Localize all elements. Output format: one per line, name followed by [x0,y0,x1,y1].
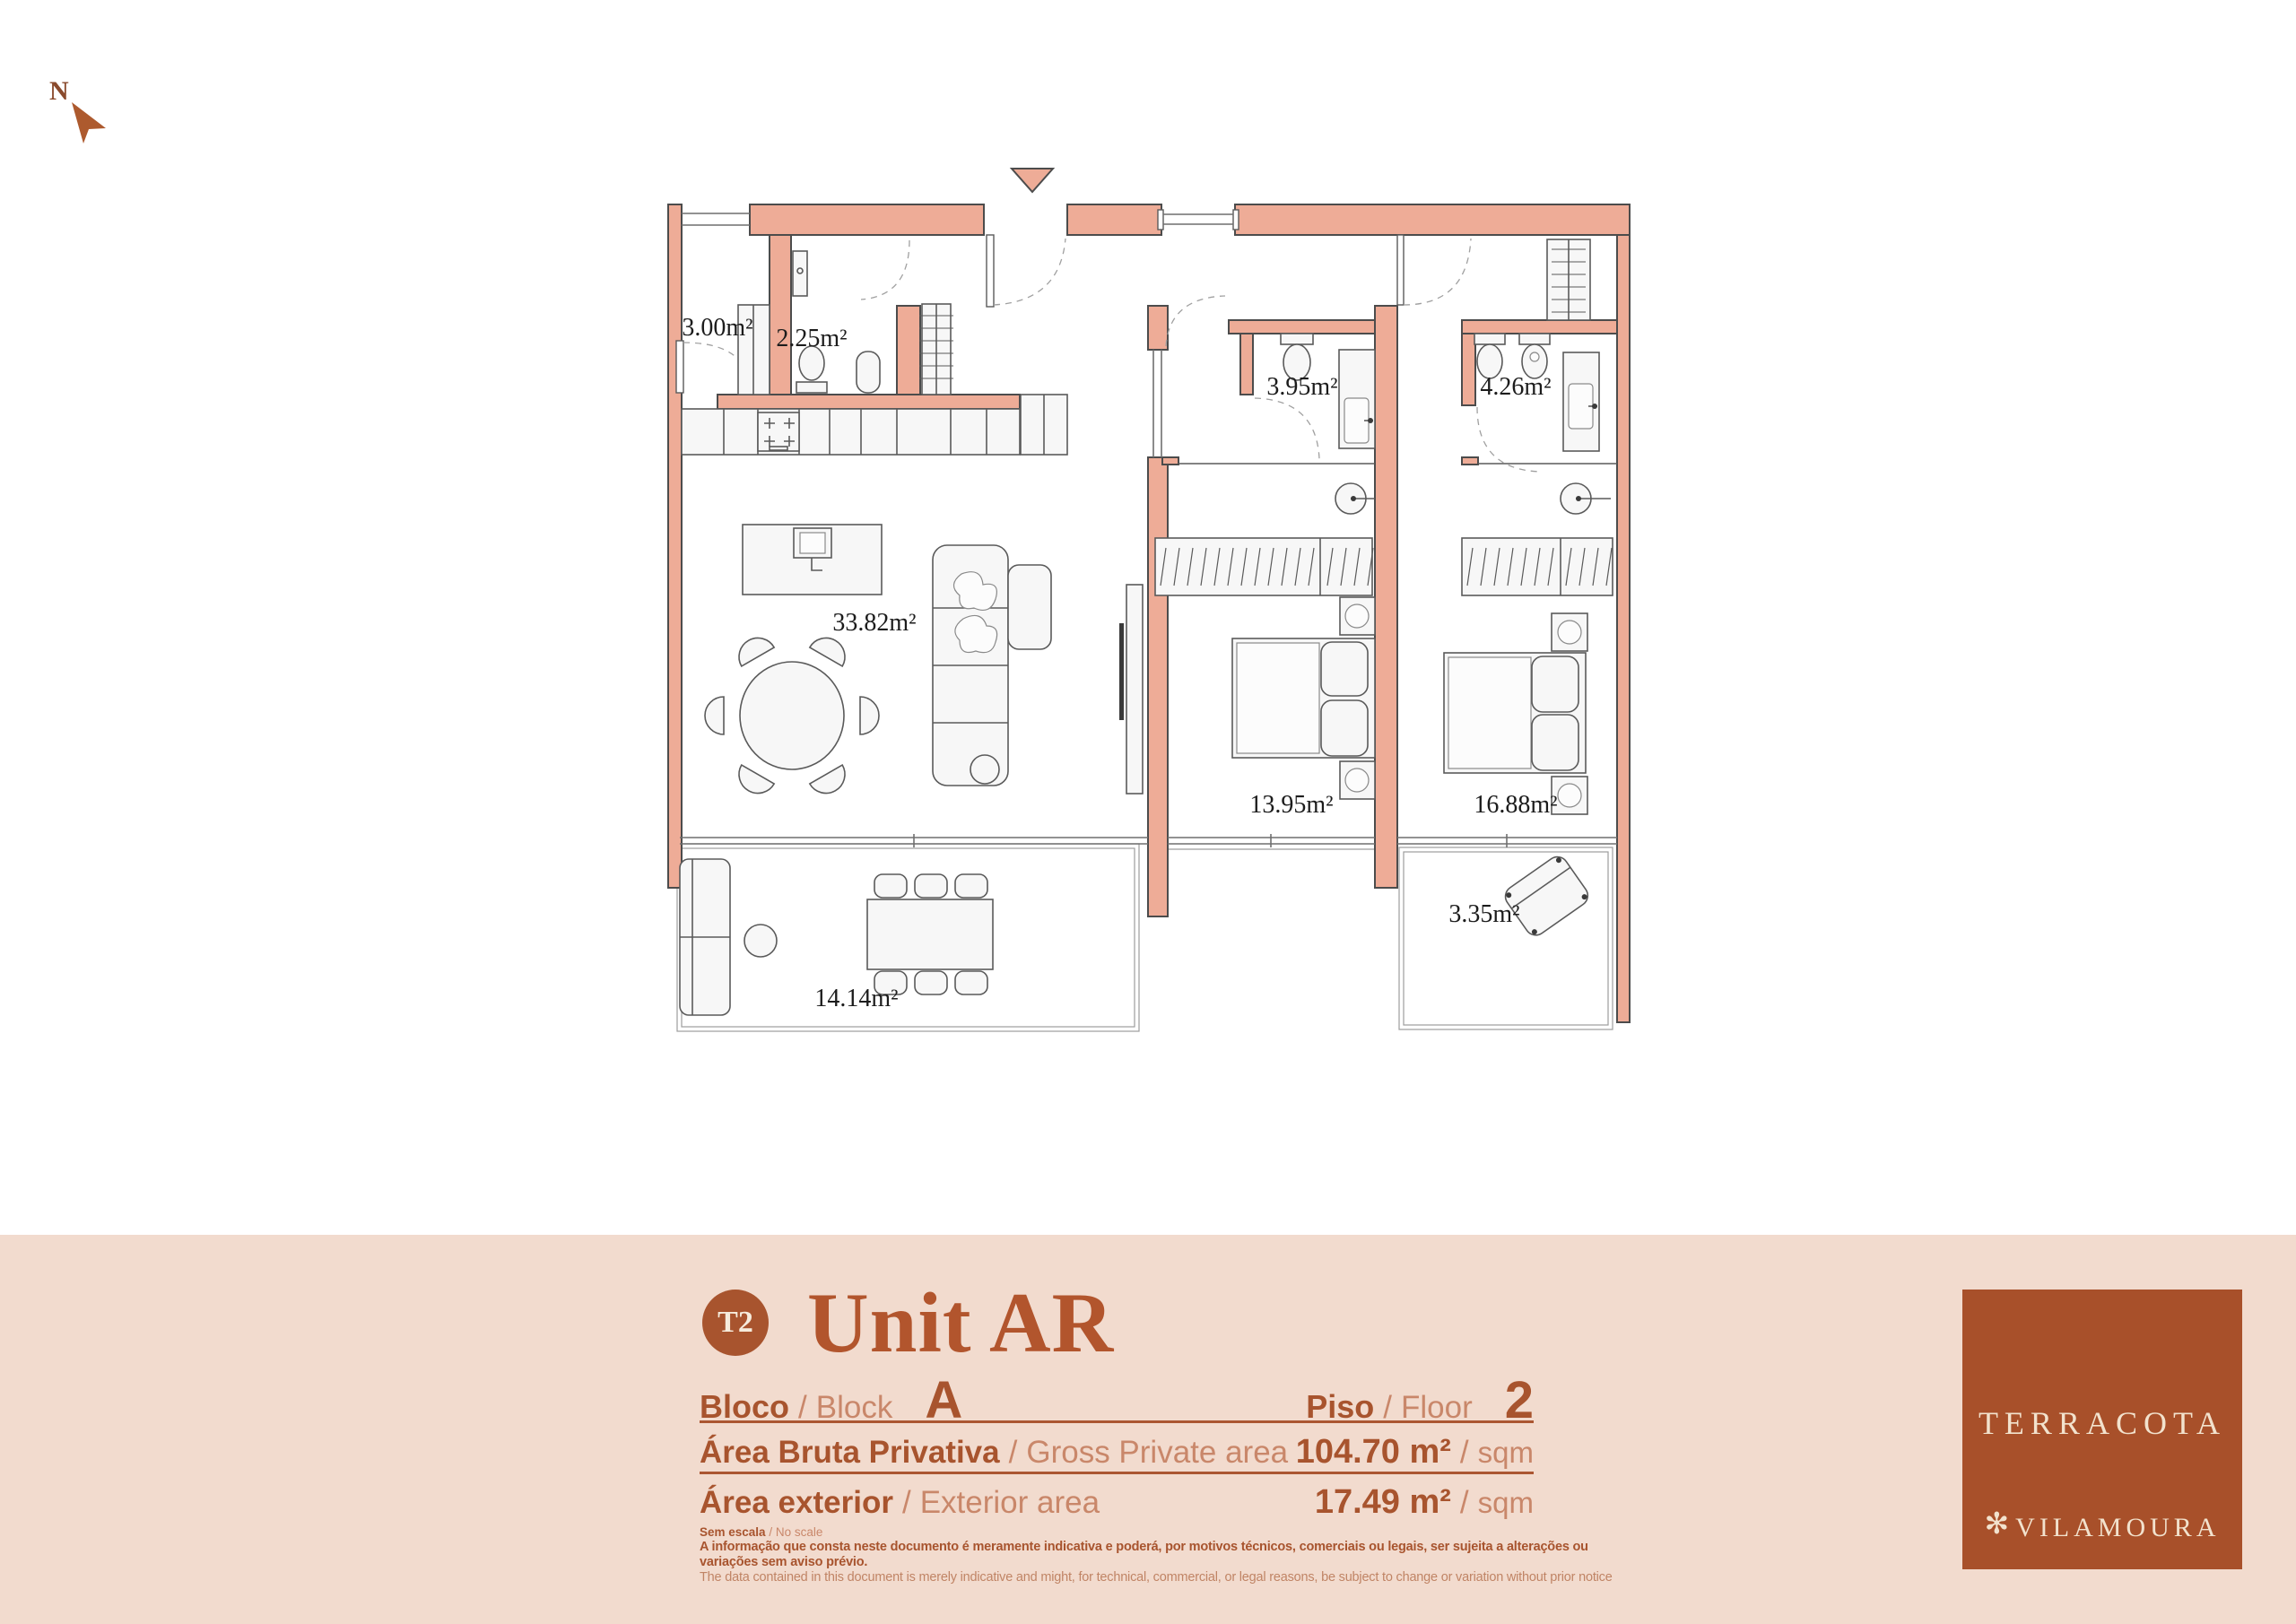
bathroom2-door-arc [1477,407,1541,472]
living-sliding-window [680,834,1148,847]
north-letter: N [49,76,69,106]
wc-sink-icon [793,251,807,296]
brand-location-row: ✻VILAMOURA [1962,1508,2242,1544]
brand-logo: TERRACOTA ✻VILAMOURA [1962,1290,2242,1569]
bed-2 [1444,613,1587,814]
storage-area-label: 3.00m² [682,314,752,342]
gross-area-value-group: 104.70 m² / sqm [1296,1433,1534,1472]
exterior-area-value-group: 17.49 m² / sqm [1315,1483,1534,1522]
balcony-area-label: 3.35m² [1448,900,1519,928]
bathroom2-bidet-icon [1519,334,1550,378]
bathroom1-area-label: 3.95m² [1266,373,1337,401]
north-arrow-icon: N [49,76,106,143]
exterior-area-label: Área exterior / Exterior area [700,1485,1100,1521]
gross-area-row: Área Bruta Privativa / Gross Private are… [700,1433,1534,1472]
divider-line-1 [700,1420,1534,1423]
bathroom2-vanity [1563,352,1599,451]
tv-console [1119,585,1143,794]
typology-badge-label: T2 [717,1306,753,1340]
kitchen-island [743,525,882,595]
gross-area-unit: sqm [1478,1436,1534,1470]
terrace-area-label: 14.14m² [814,985,898,1012]
exterior-area-unit: sqm [1478,1486,1534,1520]
bathroom2-toilet-icon [1474,334,1505,378]
brand-location: VILAMOURA [2015,1513,2220,1542]
bedroom1-sliding-window [1168,834,1375,847]
bedroom2-door [1397,235,1471,305]
bathroom2-area-label: 4.26m² [1480,373,1551,401]
bathroom1-vanity [1339,350,1375,448]
smallprint-block: Sem escala / No scale A informação que c… [700,1524,1623,1585]
bathroom1-door-arc [1255,398,1319,459]
gross-area-label-pt: Área Bruta Privativa [700,1435,1000,1471]
exterior-area-unit-sep: / [1460,1485,1469,1521]
walkin-closet [1547,239,1590,320]
bed-1 [1232,597,1375,799]
floor-plan-sheet: N [0,0,2296,1624]
wc-toilet-icon [796,346,827,393]
north-arrowhead [72,102,106,143]
gross-area-unit-sep: / [1460,1435,1469,1471]
bedroom1-door-arc [1166,296,1225,346]
hall-window [1158,210,1239,230]
living-area-label: 33.82m² [832,609,916,637]
outdoor-sofa [680,859,730,1015]
scale-note-pt: Sem escala [700,1525,766,1539]
wardrobe-1 [1155,538,1373,595]
brand-flower-icon: ✻ [1985,1508,2014,1541]
bedroom1-area-label: 13.95m² [1249,791,1333,819]
side-table-icon [744,925,777,957]
disclaimer-pt: A informação que consta neste documento … [700,1540,1623,1570]
wc-door-arc [861,240,909,300]
storage-window [682,213,750,225]
exterior-area-label-en: Exterior area [920,1485,1100,1521]
outdoor-dining-table [867,874,993,994]
bathroom2-washbasin-icon [1561,483,1611,514]
divider-line-2 [700,1472,1534,1474]
bathroom1-washbasin-icon [1335,483,1375,514]
gross-area-value: 104.70 m² [1296,1433,1451,1472]
scale-note-en: No scale [776,1525,823,1539]
wardrobe-2 [1462,538,1613,595]
gross-area-label-sep: / [1009,1435,1018,1471]
scale-note: Sem escala / No scale [700,1524,1623,1540]
hall-closet [919,304,953,395]
gross-area-label-en: Gross Private area [1026,1435,1288,1471]
scale-note-sep: / [769,1525,772,1539]
pouf-icon [970,755,999,784]
stove-icon [758,413,799,451]
entry-marker-icon [1012,169,1053,192]
sofa [933,545,1051,786]
typology-badge: T2 [702,1290,769,1356]
exterior-area-row: Área exterior / Exterior area 17.49 m² /… [700,1483,1534,1522]
wc-area-label: 2.25m² [776,325,847,352]
bedroom2-sliding-window [1397,834,1617,847]
exterior-area-value: 17.49 m² [1315,1483,1451,1522]
unit-title: Unit AR [807,1273,1114,1372]
entry-door [987,235,1065,307]
dining-table [705,631,879,800]
brand-name: TERRACOTA [1962,1404,2242,1442]
bedroom-1-suite [1155,334,1375,799]
disclaimer-en: The data contained in this document is m… [700,1570,1623,1585]
wc-basin-icon [857,352,880,393]
exterior-area-label-sep: / [902,1485,911,1521]
bedroom2-area-label: 16.88m² [1474,791,1557,819]
gross-area-label: Área Bruta Privativa / Gross Private are… [700,1435,1288,1471]
balcony-outline [1399,847,1613,1029]
floor-plan: 3.00m² 2.25m² 3.95m² 4.26m² 33.82m² 13.9… [668,169,1630,1031]
bedroom1-pocket-door [1153,350,1161,457]
exterior-area-label-pt: Área exterior [700,1485,893,1521]
